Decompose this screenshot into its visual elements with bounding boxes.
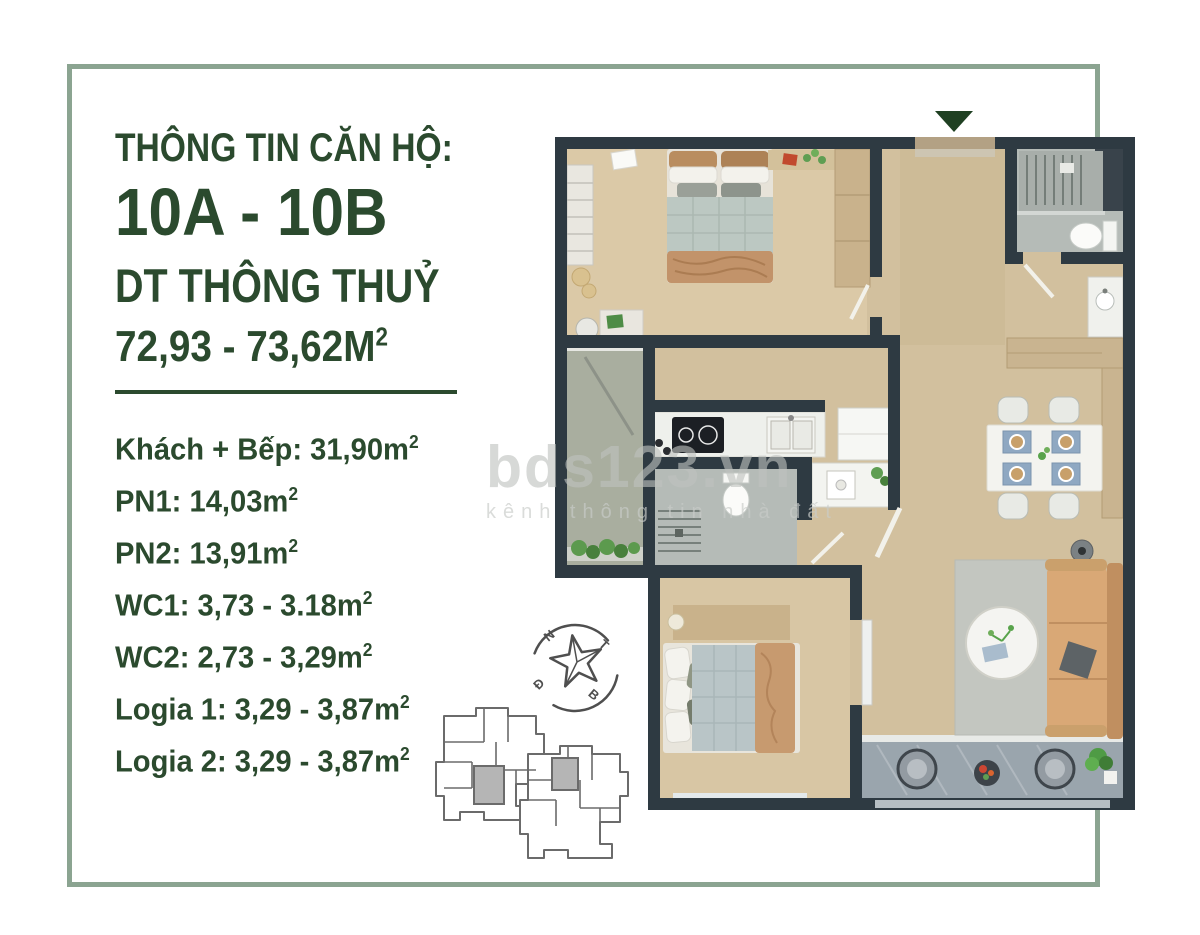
bed1-icon [667,149,773,283]
divider-line [115,390,457,394]
room-item-wc2: WC2: 2,73 - 3,29m2 [115,624,482,676]
unit-number: 10A - 10B [115,174,388,251]
key-plan [432,700,632,868]
coffee-table-icon [966,607,1038,679]
balcony-table [974,760,1000,786]
unit-10b-highlight [552,758,578,790]
toilet2-icon [723,484,749,516]
shower-glass [1017,211,1105,215]
dining-chair [1049,493,1079,519]
room-item-khach-bep: Khách + Bếp: 31,90m2 [115,416,482,468]
dining-chair [998,397,1028,423]
papers [611,149,637,170]
room-logia1-floor [567,351,643,565]
shower-drain [675,529,683,537]
dining-chair [998,493,1028,519]
room-hall-floor [900,149,1005,345]
balcony-railing-glass [875,800,1110,808]
toilet1-icon [1070,223,1102,249]
entrance-door-header [915,137,995,149]
panel-header: THÔNG TIN CĂN HỘ: [115,126,453,171]
closet1-icon [835,149,870,287]
compass-d: Đ [530,675,547,692]
room-item-pn1: PN1: 14,03m2 [115,468,482,520]
cooktop-icon [672,417,724,453]
floor-plan [555,105,1135,811]
area-value-text: 72,93 - 73,62M [115,322,375,371]
red-book [782,153,797,166]
lamp-icon [668,614,684,630]
corridor-sink [812,463,897,507]
shower-head [1060,163,1074,173]
page: THÔNG TIN CĂN HỘ: 10A - 10B DT THÔNG THU… [0,0,1200,935]
sofa-icon [1045,559,1123,739]
compass-star [550,635,601,686]
unit-10a-highlight [474,766,504,804]
area-label: DT THÔNG THUỶ [115,258,440,313]
bedroom2-door [862,620,872,705]
room-item-pn2: PN2: 13,91m2 [115,520,482,572]
area-value: 72,93 - 73,62M2 [115,322,388,372]
area-value-sup: 2 [375,323,387,351]
living-area [955,540,1123,739]
kitchen-counter [652,412,825,457]
entrance-marker-icon [935,111,973,132]
room-item-logia1: Logia 1: 3,29 - 3,87m2 [115,676,482,728]
shelf [768,150,837,170]
room-item-wc1: WC1: 3,73 - 3.18m2 [115,572,482,624]
headboard-panel [673,605,790,640]
bed2-icon [663,643,800,753]
entrance-threshold [915,149,995,157]
plant-pot [1104,771,1117,784]
kitchen-sink-icon [767,415,815,453]
dining-chair [1049,397,1079,423]
vanity-icon [1088,277,1123,337]
room-item-logia2: Logia 2: 3,29 - 3,87m2 [115,728,482,780]
